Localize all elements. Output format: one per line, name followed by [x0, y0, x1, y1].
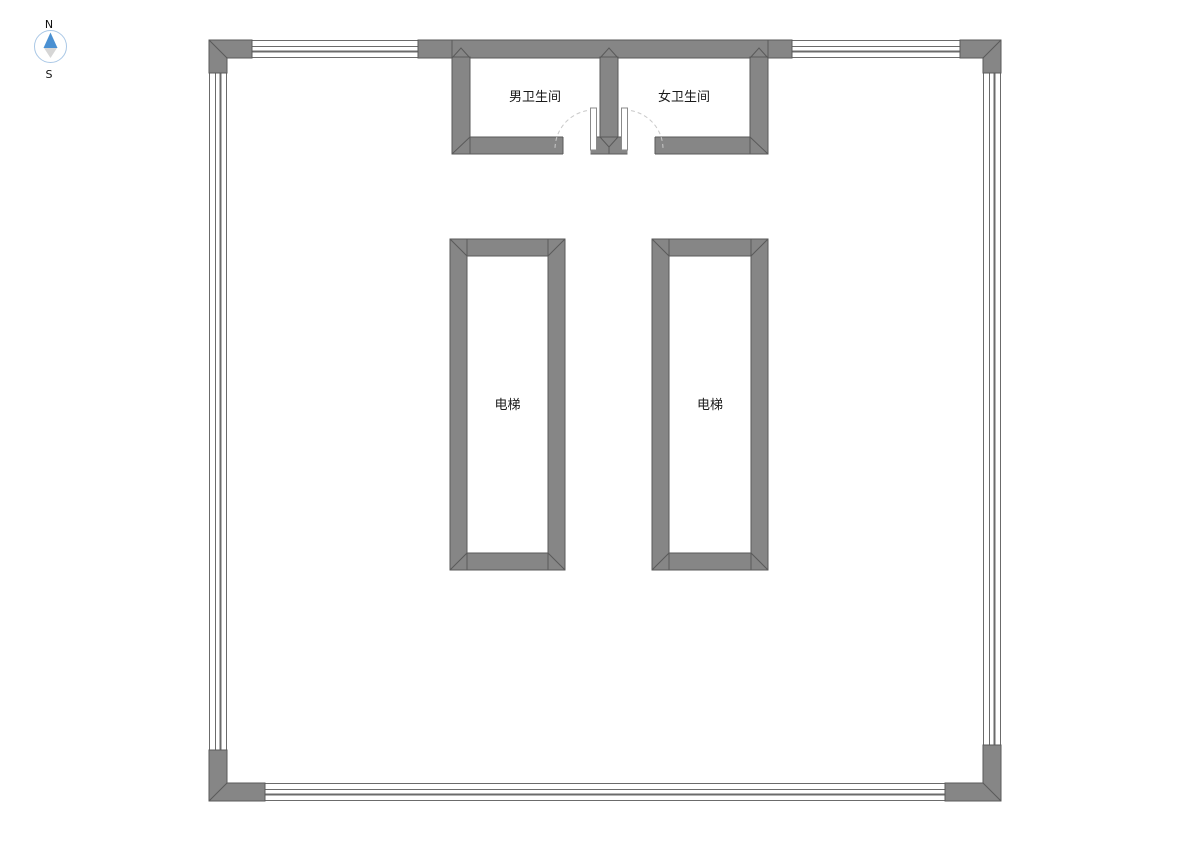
elevator-left-label: 电梯 [494, 398, 520, 413]
compass-north-label: N [45, 18, 53, 31]
shaft-wall [548, 239, 565, 570]
compass-north-arrow-icon [44, 33, 58, 49]
compass-south-label: S [46, 68, 53, 81]
wall-segment [418, 40, 452, 58]
door-leaf-icon [591, 108, 597, 150]
elevator-shaft-right: 电梯 [652, 239, 768, 570]
corner-block-top-left [209, 40, 252, 73]
womens-restroom-label: 女卫生间 [658, 89, 710, 105]
door-leaf-icon [622, 108, 628, 150]
elevator-right-label: 电梯 [697, 398, 723, 413]
restroom-block: 男卫生间 女卫生间 [452, 40, 768, 156]
shaft-wall [450, 239, 467, 570]
shaft-wall [652, 239, 669, 570]
corner-block-bottom-left [209, 750, 265, 801]
elevator-shaft-left: 电梯 [450, 239, 565, 570]
window-top-right [792, 40, 960, 58]
floor-plan-canvas: N S [0, 0, 1191, 841]
door-opening-left [563, 136, 591, 156]
compass-south-arrow-icon [44, 48, 57, 58]
floor-plan: N S [0, 0, 1191, 841]
mens-restroom-label: 男卫生间 [509, 90, 561, 105]
door-opening-right [628, 136, 656, 156]
window-top-left [252, 40, 418, 58]
window-bottom [265, 783, 945, 801]
window-right [983, 73, 1001, 745]
wall-segment [768, 40, 792, 58]
compass-icon: N S [35, 18, 67, 81]
window-left [209, 73, 227, 750]
shaft-wall [751, 239, 768, 570]
corner-block-top-right [960, 40, 1001, 73]
